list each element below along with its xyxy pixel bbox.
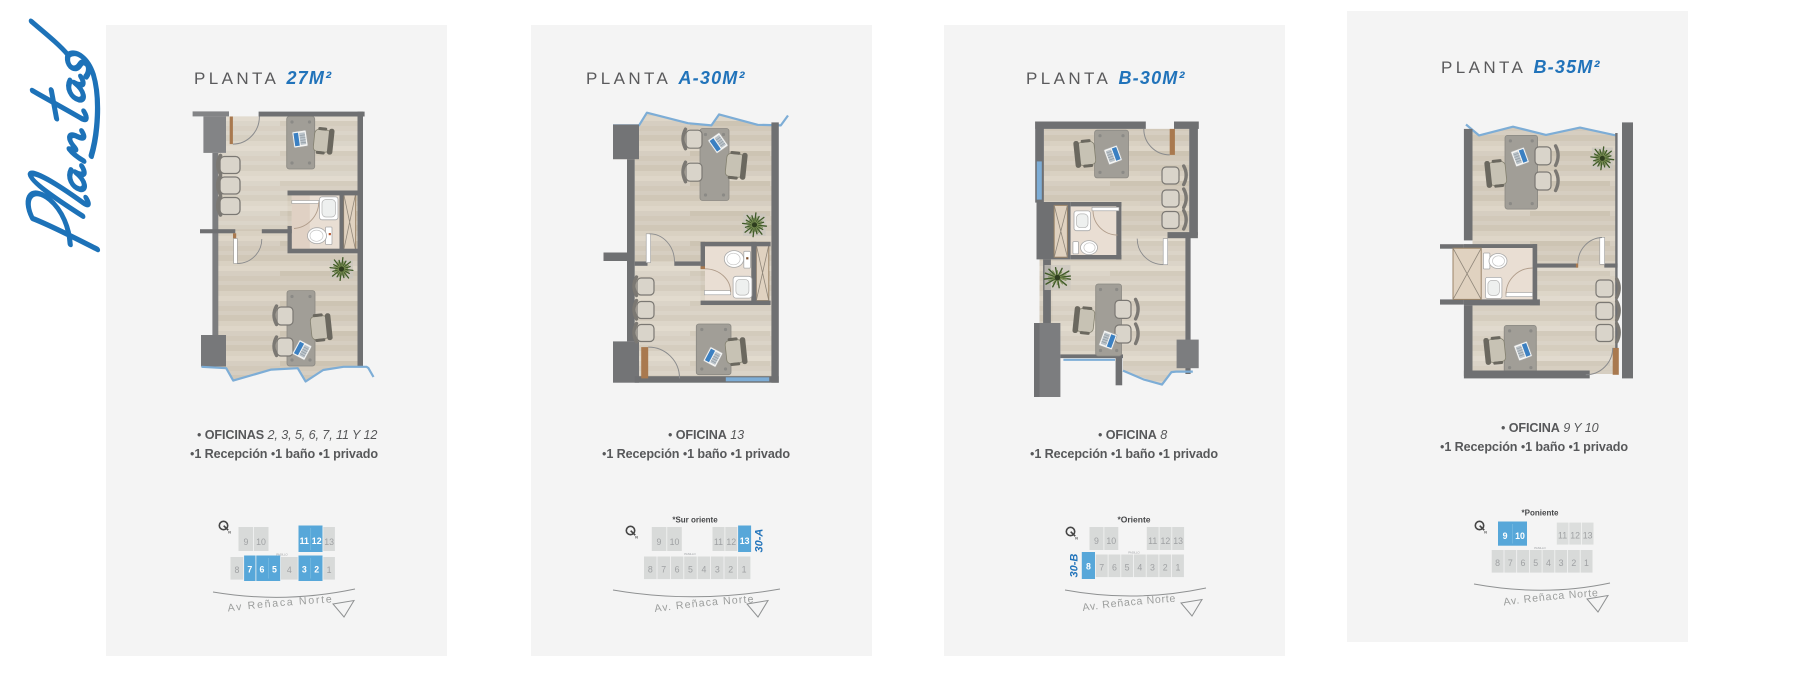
svg-text:3: 3 [302,565,307,575]
svg-text:4: 4 [1546,558,1551,568]
svg-text:PASILLO: PASILLO [1534,546,1546,550]
svg-text:N: N [1484,530,1487,534]
svg-text:10: 10 [1106,536,1116,546]
svg-text:9: 9 [657,537,662,547]
svg-text:13: 13 [324,537,334,547]
svg-text:10: 10 [1515,531,1525,541]
svg-text:12: 12 [1161,536,1171,546]
svg-text:N: N [228,530,231,534]
svg-text:30-B: 30-B [1069,554,1081,578]
svg-text:4: 4 [1137,563,1142,573]
svg-text:1: 1 [1175,563,1180,573]
svg-text:2: 2 [314,565,319,575]
svg-text:PASILLO: PASILLO [684,552,696,556]
svg-text:5: 5 [272,565,277,575]
svg-text:8: 8 [648,565,653,575]
svg-text:N: N [635,535,638,539]
svg-text:30-A: 30-A [754,529,766,553]
svg-text:7: 7 [661,565,666,575]
svg-text:*Poniente: *Poniente [1522,509,1559,518]
svg-text:*Oriente: *Oriente [1117,515,1150,525]
svg-text:12: 12 [312,536,322,546]
svg-text:6: 6 [675,565,680,575]
svg-text:PASILLO: PASILLO [1128,550,1140,554]
svg-text:4: 4 [287,565,292,575]
svg-text:5: 5 [1125,563,1130,573]
svg-text:3: 3 [715,565,720,575]
svg-text:1: 1 [327,565,332,575]
svg-text:10: 10 [670,537,680,547]
svg-text:11: 11 [714,537,723,547]
svg-text:3: 3 [1150,563,1155,573]
svg-text:2: 2 [728,565,733,575]
svg-text:9: 9 [1503,531,1508,541]
svg-text:Av Reñaca Norte: Av Reñaca Norte [227,593,334,614]
svg-text:13: 13 [1583,531,1593,541]
svg-text:*Sur oriente: *Sur oriente [672,516,718,525]
svg-text:N: N [1075,536,1078,540]
svg-text:1: 1 [1584,558,1589,568]
svg-text:10: 10 [256,537,266,547]
svg-text:12: 12 [726,537,736,547]
svg-text:8: 8 [1086,562,1091,572]
svg-text:12: 12 [1570,531,1580,541]
svg-text:5: 5 [1533,558,1538,568]
svg-text:8: 8 [234,565,239,575]
svg-text:7: 7 [1099,563,1104,573]
svg-text:3: 3 [1559,558,1564,568]
svg-text:5: 5 [688,565,693,575]
svg-text:11: 11 [300,536,309,546]
svg-text:2: 2 [1571,558,1576,568]
svg-text:13: 13 [1173,536,1183,546]
svg-text:11: 11 [1148,536,1157,546]
svg-text:4: 4 [701,565,706,575]
svg-text:13: 13 [740,536,750,546]
svg-text:6: 6 [1112,563,1117,573]
svg-text:1: 1 [742,565,747,575]
svg-text:9: 9 [244,537,249,547]
svg-text:6: 6 [260,565,265,575]
svg-text:6: 6 [1521,558,1526,568]
svg-text:8: 8 [1495,558,1500,568]
svg-text:9: 9 [1094,536,1099,546]
svg-text:7: 7 [1508,558,1513,568]
svg-text:11: 11 [1558,531,1567,541]
svg-text:2: 2 [1163,563,1168,573]
svg-text:7: 7 [247,565,252,575]
